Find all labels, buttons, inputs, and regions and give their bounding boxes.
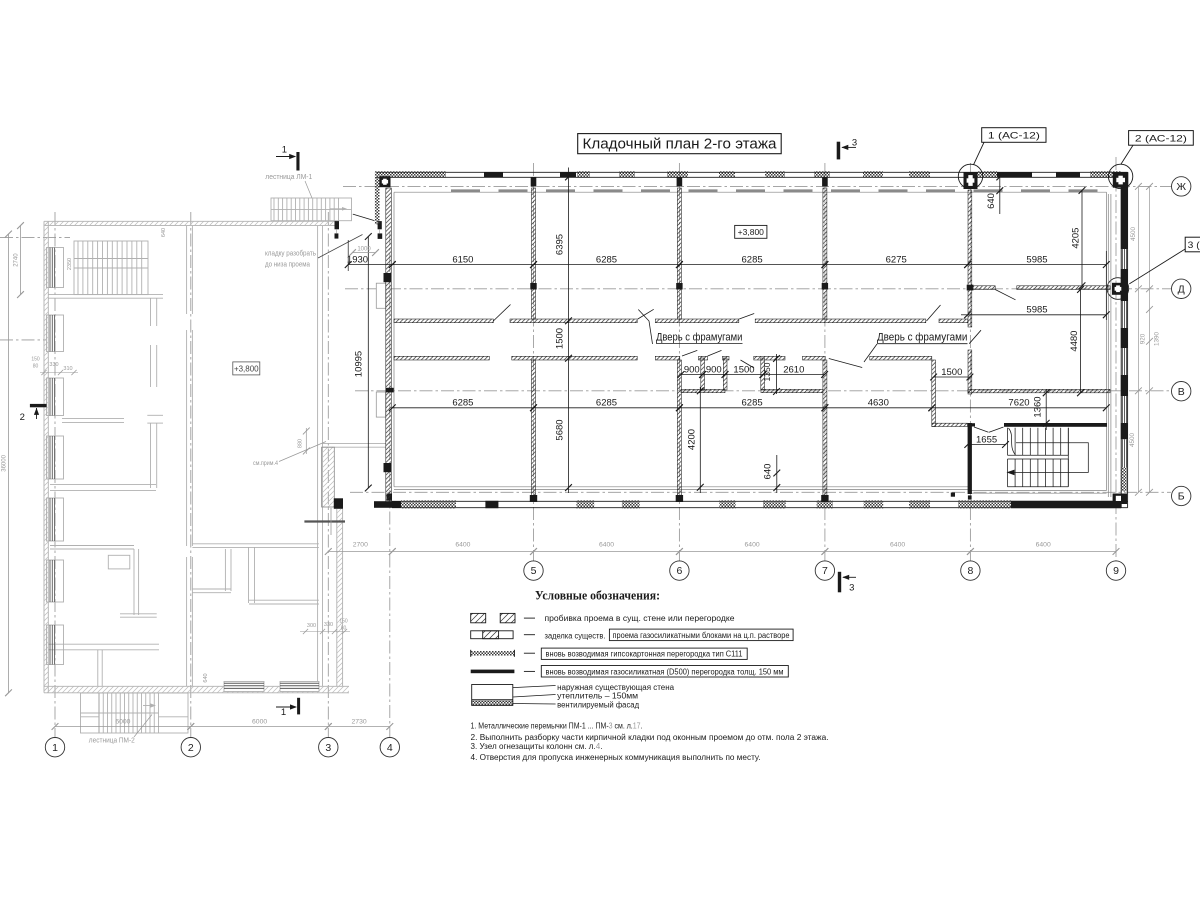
svg-text:1: 1 bbox=[52, 742, 58, 754]
svg-text:6400: 6400 bbox=[890, 542, 905, 549]
svg-text:7: 7 bbox=[822, 565, 828, 577]
svg-text:2740: 2740 bbox=[14, 253, 20, 267]
svg-text:310: 310 bbox=[63, 366, 72, 372]
svg-text:вентилируемый фасад: вентилируемый фасад bbox=[557, 700, 639, 709]
svg-text:6285: 6285 bbox=[452, 398, 473, 409]
svg-text:1500: 1500 bbox=[554, 328, 565, 349]
svg-text:1360: 1360 bbox=[1033, 396, 1044, 417]
svg-text:880: 880 bbox=[298, 439, 304, 448]
svg-text:до низа проема: до низа проема bbox=[265, 259, 310, 268]
svg-text:4205: 4205 bbox=[1071, 228, 1082, 249]
svg-text:5680: 5680 bbox=[554, 419, 565, 440]
svg-text:150: 150 bbox=[339, 619, 348, 625]
svg-text:640: 640 bbox=[763, 464, 774, 480]
svg-text:6400: 6400 bbox=[1036, 542, 1051, 549]
svg-text:6285: 6285 bbox=[596, 254, 617, 265]
svg-text:8: 8 bbox=[967, 565, 973, 577]
svg-text:3 (: 3 ( bbox=[1188, 240, 1200, 250]
svg-text:300: 300 bbox=[307, 623, 316, 629]
svg-text:920: 920 bbox=[1139, 333, 1146, 344]
svg-text:2: 2 bbox=[188, 742, 194, 754]
svg-text:80: 80 bbox=[33, 364, 39, 370]
svg-text:6150: 6150 bbox=[452, 254, 473, 265]
svg-text:330: 330 bbox=[324, 622, 333, 628]
svg-text:6400: 6400 bbox=[455, 542, 470, 549]
svg-text:1: 1 bbox=[282, 145, 287, 156]
svg-text:5985: 5985 bbox=[1026, 305, 1047, 316]
svg-text:+3,800: +3,800 bbox=[234, 364, 259, 373]
svg-text:10995: 10995 bbox=[354, 351, 365, 377]
svg-text:150: 150 bbox=[31, 357, 40, 363]
svg-text:Д: Д bbox=[1178, 283, 1185, 295]
svg-text:1 (АС-12): 1 (АС-12) bbox=[988, 131, 1040, 141]
svg-text:Дверь с фрамугами: Дверь с фрамугами bbox=[877, 331, 968, 343]
svg-text:4500: 4500 bbox=[1129, 433, 1136, 448]
svg-text:Условные обозначения:: Условные обозначения: bbox=[535, 589, 660, 603]
svg-text:1350: 1350 bbox=[762, 362, 772, 381]
svg-text:1500: 1500 bbox=[733, 364, 754, 375]
svg-text:2700: 2700 bbox=[353, 542, 368, 549]
svg-text:пробивка проема в сущ. стене: пробивка проема в сущ. стене или перегор… bbox=[545, 614, 736, 623]
svg-text:7620: 7620 bbox=[1008, 398, 1029, 409]
svg-text:2. Выполнить разборку части ки: 2. Выполнить разборку части кирпичной кл… bbox=[471, 733, 829, 742]
svg-text:4200: 4200 bbox=[687, 429, 698, 450]
svg-text:В: В bbox=[1178, 386, 1185, 398]
svg-text:3. Узел огнезащиты колонн см.: 3. Узел огнезащиты колонн см. л.4. bbox=[471, 742, 603, 751]
svg-text:+3,800: +3,800 bbox=[738, 227, 765, 237]
svg-text:лестница ЛМ-1: лестница ЛМ-1 bbox=[265, 174, 312, 181]
svg-text:6000: 6000 bbox=[252, 719, 267, 726]
svg-text:2 (АС-12): 2 (АС-12) bbox=[1135, 134, 1187, 144]
svg-text:640: 640 bbox=[203, 673, 209, 682]
svg-text:5985: 5985 bbox=[1026, 254, 1047, 265]
svg-text:1655: 1655 bbox=[976, 434, 997, 445]
svg-text:2350: 2350 bbox=[67, 258, 73, 270]
svg-text:вновь возводимая газосиликатна: вновь возводимая газосиликатная (D500) п… bbox=[546, 668, 784, 677]
svg-text:900: 900 bbox=[706, 364, 722, 375]
svg-text:проема газосиликатными блоками: проема газосиликатными блоками на ц.п. р… bbox=[613, 631, 791, 640]
svg-text:9: 9 bbox=[1113, 565, 1119, 577]
svg-text:3: 3 bbox=[325, 742, 331, 754]
svg-text:640: 640 bbox=[986, 193, 997, 209]
svg-text:4. Отверстия для пропуска инже: 4. Отверстия для пропуска инженерных ком… bbox=[471, 753, 761, 762]
svg-text:Кладочный план 2-го этажа: Кладочный план 2-го этажа bbox=[583, 136, 778, 153]
svg-text:6275: 6275 bbox=[886, 254, 907, 265]
svg-text:1. Металлические перемычки П: 1. Металлические перемычки ПМ-1 ... ПМ-3… bbox=[471, 721, 643, 730]
svg-text:наружная существующая стена: наружная существующая стена bbox=[557, 683, 675, 692]
svg-text:6395: 6395 bbox=[554, 234, 565, 255]
svg-text:6400: 6400 bbox=[745, 542, 760, 549]
svg-text:Дверь с фрамугами: Дверь с фрамугами bbox=[656, 331, 743, 343]
svg-text:36000: 36000 bbox=[2, 454, 8, 471]
svg-text:4480: 4480 bbox=[1069, 331, 1080, 352]
svg-text:6285: 6285 bbox=[742, 254, 763, 265]
svg-text:3: 3 bbox=[849, 582, 854, 593]
svg-text:5: 5 bbox=[531, 565, 537, 577]
svg-text:лестница ПМ-2: лестница ПМ-2 bbox=[89, 738, 135, 745]
svg-text:2610: 2610 bbox=[783, 364, 804, 375]
svg-text:900: 900 bbox=[684, 364, 700, 375]
svg-text:4: 4 bbox=[387, 742, 393, 754]
svg-text:2730: 2730 bbox=[352, 719, 367, 726]
svg-text:6000: 6000 bbox=[115, 719, 130, 726]
svg-text:вновь возводимая гипсокартонна: вновь возводимая гипсокартонная перегоро… bbox=[546, 650, 744, 659]
svg-text:3: 3 bbox=[852, 137, 857, 148]
svg-text:640: 640 bbox=[161, 228, 167, 237]
svg-text:4500: 4500 bbox=[1130, 227, 1137, 242]
svg-text:6400: 6400 bbox=[599, 542, 614, 549]
svg-text:1500: 1500 bbox=[941, 367, 962, 378]
svg-text:1: 1 bbox=[281, 707, 286, 718]
svg-text:4630: 4630 bbox=[868, 398, 889, 409]
svg-text:2: 2 bbox=[20, 412, 25, 423]
svg-text:6285: 6285 bbox=[742, 398, 763, 409]
svg-text:6285: 6285 bbox=[596, 398, 617, 409]
svg-text:6: 6 bbox=[676, 565, 682, 577]
svg-text:1390: 1390 bbox=[1154, 332, 1161, 347]
svg-text:заделка существ.: заделка существ. bbox=[545, 631, 606, 640]
svg-text:Ж: Ж bbox=[1176, 181, 1186, 193]
svg-text:см.прим.4: см.прим.4 bbox=[253, 460, 278, 467]
svg-text:1000: 1000 bbox=[357, 246, 371, 252]
svg-text:Б: Б bbox=[1178, 491, 1185, 503]
svg-text:330: 330 bbox=[49, 362, 58, 368]
svg-text:1930: 1930 bbox=[347, 254, 368, 265]
svg-text:кладку разобрать: кладку разобрать bbox=[265, 248, 316, 257]
